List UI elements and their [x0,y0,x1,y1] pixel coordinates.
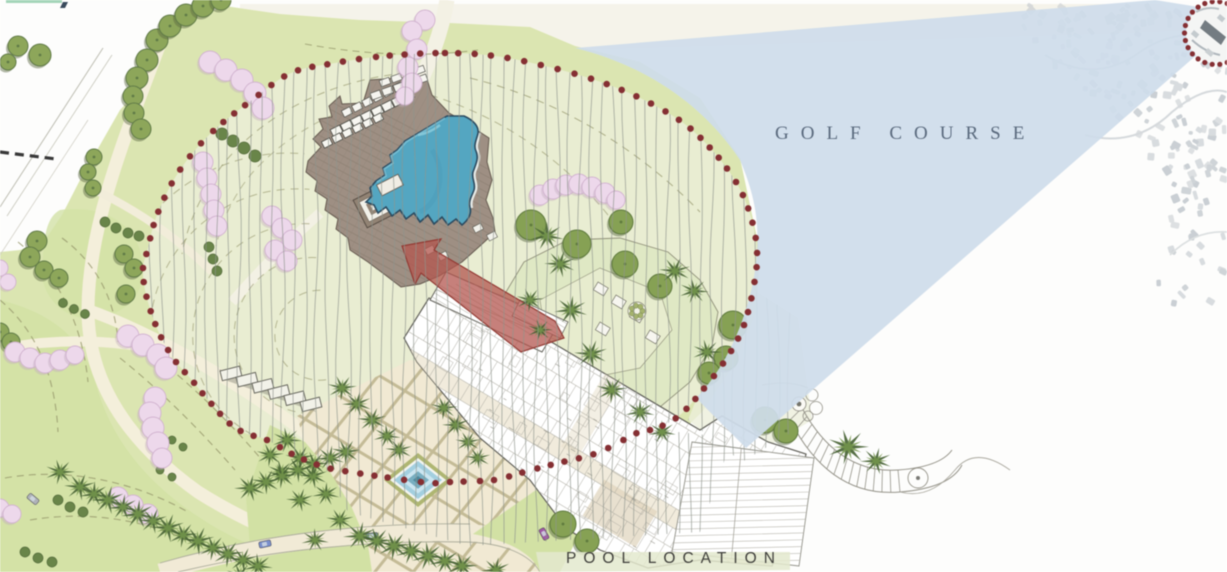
svg-text:POOL LOCATION: POOL LOCATION [566,550,782,567]
svg-text:GOLF COURSE: GOLF COURSE [775,123,1036,144]
